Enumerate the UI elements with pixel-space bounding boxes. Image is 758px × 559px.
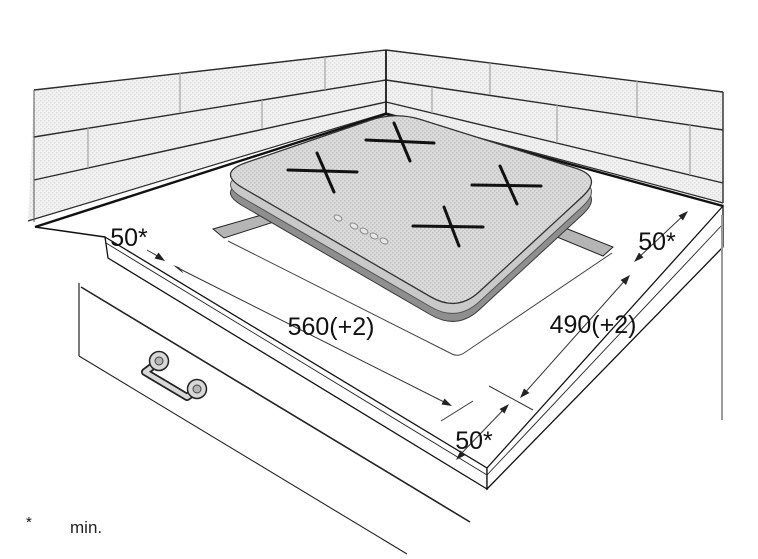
installation-drawing-canvas: 50* 560(+2) 490(+2) 50* 50* * min. [0, 0, 758, 559]
handle-rosette-right [188, 380, 207, 399]
clearance-right-label: 50* [638, 228, 676, 256]
cutout-width-label: 560(+2) [288, 313, 375, 341]
clearance-left-label: 50* [110, 224, 148, 252]
handle-rosette-left [150, 352, 169, 371]
clearance-front-label: 50* [455, 427, 493, 455]
cutout-depth-label: 490(+2) [550, 311, 637, 339]
footnote-symbol: * [26, 514, 32, 531]
footnote-text: min. [70, 518, 102, 537]
installation-diagram: 50* 560(+2) 490(+2) 50* 50* * min. [0, 0, 758, 559]
